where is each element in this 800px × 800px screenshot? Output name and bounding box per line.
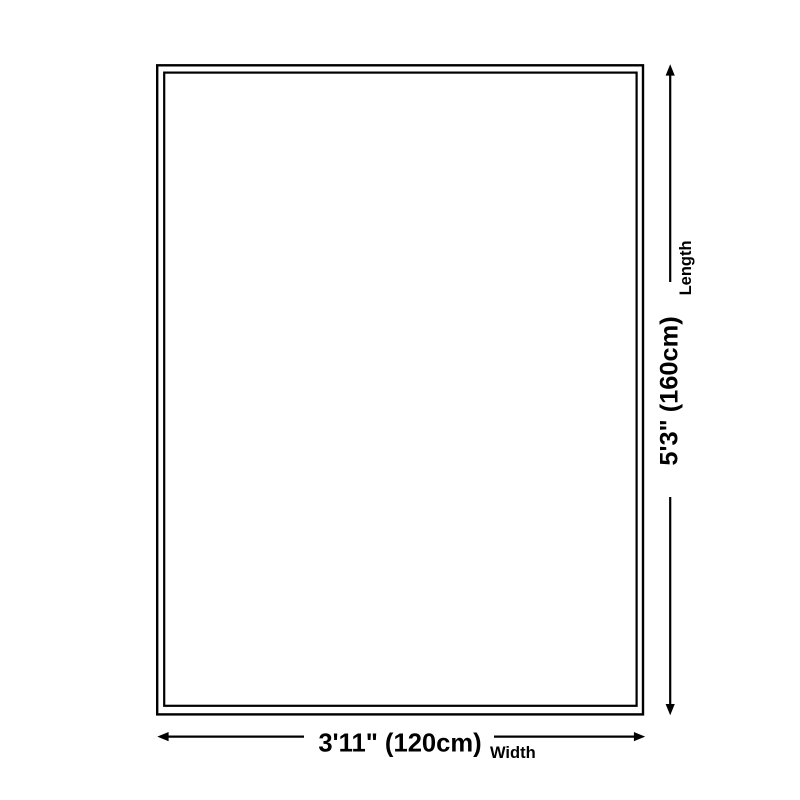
svg-text:Length: Length	[677, 240, 695, 295]
svg-text:5'3" (160cm): 5'3" (160cm)	[655, 316, 683, 465]
svg-text:Width: Width	[490, 744, 536, 762]
svg-text:3'11" (120cm): 3'11" (120cm)	[318, 729, 481, 757]
